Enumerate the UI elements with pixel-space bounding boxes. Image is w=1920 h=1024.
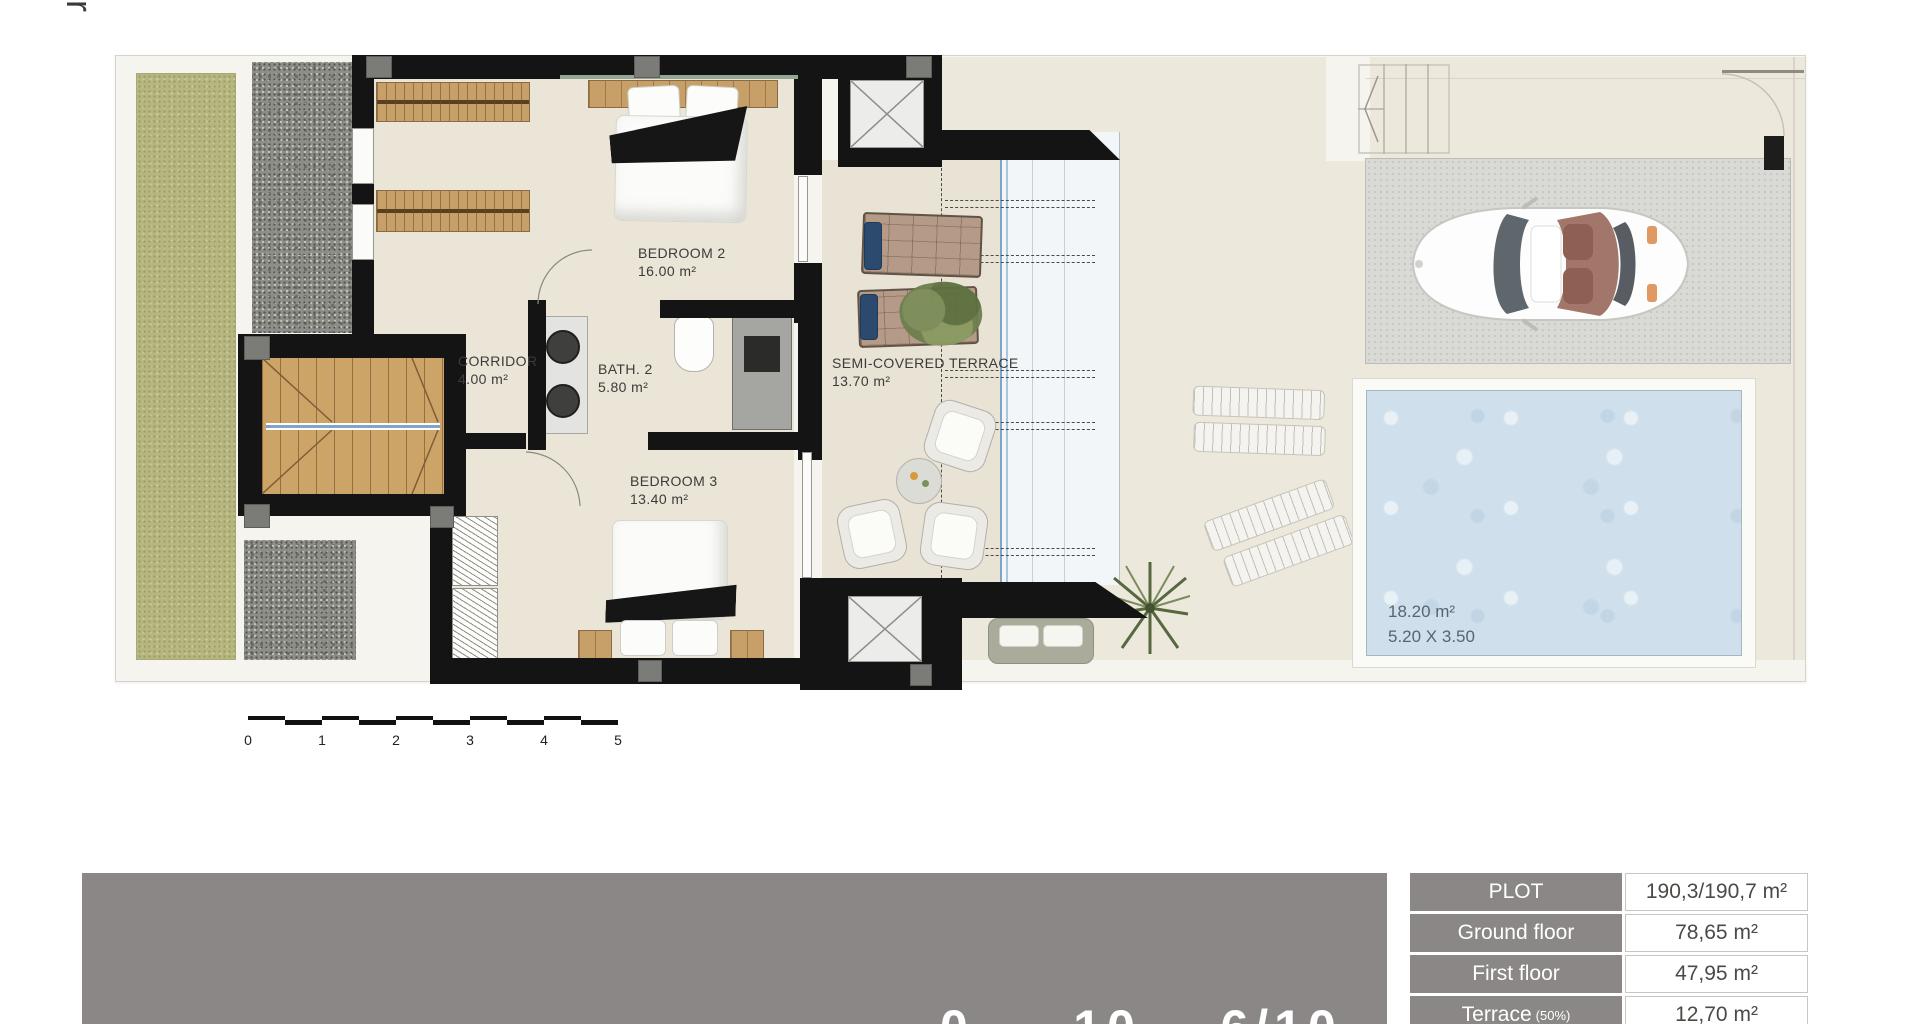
scale-segment: [359, 716, 396, 725]
elevator-shaft-icon: [848, 596, 922, 662]
bath-wall: [648, 432, 812, 450]
gravel-patch-bottom: [244, 540, 356, 660]
pillar: [910, 664, 932, 686]
gate-arc: [1720, 72, 1790, 142]
pillar: [634, 56, 660, 78]
room-area: 4.00 m²: [458, 370, 537, 388]
pillar: [430, 506, 454, 528]
entry-stairs: [1358, 64, 1450, 154]
scale-segment: [507, 716, 544, 725]
stair-glass-rail: [266, 423, 440, 430]
table-row: Ground floor 78,65 m²: [1410, 914, 1808, 952]
table-row: PLOT 190,3/190,7 m²: [1410, 873, 1808, 911]
lounger-headrest: [860, 294, 878, 340]
terrace-wall: [940, 130, 1120, 160]
bed-headboard: [588, 80, 778, 108]
pool-area: 18.20 m²: [1388, 600, 1475, 625]
scale-tick: 1: [312, 732, 332, 748]
corridor-wall: [464, 433, 526, 449]
scale-segment: [470, 716, 507, 725]
row-label: First floor: [1410, 955, 1622, 993]
scale-tick: 5: [608, 732, 628, 748]
coffee-table: [896, 458, 942, 504]
row-label-text: PLOT: [1489, 880, 1544, 904]
pergola-line: [945, 200, 1095, 208]
room-name: BEDROOM 2: [638, 244, 726, 262]
row-value: 12,70 m²: [1625, 996, 1808, 1024]
room-label-terrace: SEMI-COVERED TERRACE 13.70 m²: [832, 354, 1019, 390]
bedside-table: [730, 630, 764, 660]
pillar: [244, 336, 270, 360]
louver-wardrobe: [452, 588, 498, 660]
house-wall: [798, 320, 822, 460]
louver-wardrobe: [452, 516, 498, 586]
door-swing: [536, 248, 594, 306]
scale-tick: 4: [534, 732, 554, 748]
car-top-view: [1395, 196, 1695, 332]
row-value: 190,3/190,7 m²: [1625, 873, 1808, 911]
garden-strip: [136, 73, 236, 660]
armchair: [918, 500, 990, 572]
pillow: [672, 620, 718, 656]
pillar: [638, 660, 662, 682]
pillar: [366, 56, 392, 78]
table-decor: [922, 480, 929, 487]
room-area: 16.00 m²: [638, 262, 726, 280]
window-strip: [560, 75, 798, 79]
gate-post: [1764, 136, 1784, 170]
house-wall: [352, 296, 374, 338]
room-name: BATH. 2: [598, 360, 653, 378]
row-label: Ground floor: [1410, 914, 1622, 952]
elevator-shaft-icon: [850, 80, 924, 148]
scale-tick: 2: [386, 732, 406, 748]
scale-tick: 0: [238, 732, 258, 748]
window: [798, 176, 808, 262]
washbasin: [546, 330, 580, 364]
toilet: [674, 316, 714, 372]
sofa: [988, 618, 1094, 664]
pool-dimensions: 5.20 X 3.50: [1388, 625, 1475, 650]
room-area: 13.40 m²: [630, 490, 718, 508]
scale-segment: [322, 716, 359, 725]
row-label-text: Terrace: [1462, 1003, 1532, 1024]
scale-segment: [396, 716, 433, 725]
row-value: 78,65 m²: [1625, 914, 1808, 952]
floor-plan-page: First floor: [0, 0, 1920, 1024]
house-wall: [430, 658, 812, 684]
scale-tick: 3: [460, 732, 480, 748]
scale-segment: [581, 716, 618, 725]
table-row: First floor 47,95 m²: [1410, 955, 1808, 993]
scale-segment: [248, 716, 285, 725]
window: [802, 452, 812, 578]
row-label-text: Ground floor: [1458, 921, 1575, 945]
scale-segment: [544, 716, 581, 725]
house-wall: [794, 79, 822, 175]
room-label-bedroom3: BEDROOM 3 13.40 m²: [630, 472, 718, 508]
house-wall: [430, 506, 452, 682]
window: [352, 128, 374, 184]
bedside-table: [578, 630, 612, 660]
table-row: Terrace (50%) 12,70 m²: [1410, 996, 1808, 1024]
wardrobe: [376, 82, 530, 122]
scale-segment: [433, 716, 470, 725]
room-label-bedroom2: BEDROOM 2 16.00 m²: [638, 244, 726, 280]
lounger-headrest: [864, 222, 882, 270]
wardrobe: [376, 190, 530, 232]
pool-lounger-pair: [1191, 386, 1333, 463]
window: [352, 204, 374, 260]
row-label: PLOT: [1410, 873, 1622, 911]
shower-tray: [744, 336, 780, 372]
row-label: Terrace (50%): [1410, 996, 1622, 1024]
sun-lounger: [1193, 422, 1326, 457]
room-name: CORRIDOR: [458, 352, 537, 370]
room-label-bath2: BATH. 2 5.80 m²: [598, 360, 653, 396]
room-name: SEMI-COVERED TERRACE: [832, 354, 1019, 372]
room-label-corridor: CORRIDOR 4.00 m²: [458, 352, 537, 388]
room-area: 13.70 m²: [832, 372, 1019, 390]
armchair-cushion: [932, 408, 987, 463]
gravel-patch-top: [252, 62, 352, 257]
footer-partial-text: 0 10 6/10 0: [940, 999, 1387, 1024]
pool-label: 18.20 m² 5.20 X 3.50: [1388, 600, 1475, 649]
footer-band: 0 10 6/10 0: [82, 873, 1387, 1024]
row-label-suffix: (50%): [1536, 1008, 1571, 1023]
scale-segment: [285, 716, 322, 725]
room-name: BEDROOM 3: [630, 472, 718, 490]
row-label-text: First floor: [1472, 962, 1560, 986]
sofa-cushion: [1043, 625, 1083, 647]
row-value: 47,95 m²: [1625, 955, 1808, 993]
pillow: [620, 620, 666, 656]
plot-edge-line: [1793, 57, 1795, 660]
gate-lintel: [1722, 70, 1804, 73]
room-area: 5.80 m²: [598, 378, 653, 396]
sun-lounger: [1192, 386, 1325, 421]
bath-wall: [660, 300, 810, 318]
summary-table: PLOT 190,3/190,7 m² Ground floor 78,65 m…: [1410, 873, 1808, 1024]
armchair-cushion: [929, 511, 979, 561]
armchair-cushion: [846, 508, 898, 560]
sofa-cushion: [999, 625, 1039, 647]
floor-side-label: First floor: [58, 0, 100, 13]
table-decor: [910, 472, 918, 480]
pillar: [906, 56, 932, 78]
washbasin: [546, 384, 580, 418]
door-swing: [524, 450, 582, 508]
pillar: [244, 504, 270, 528]
